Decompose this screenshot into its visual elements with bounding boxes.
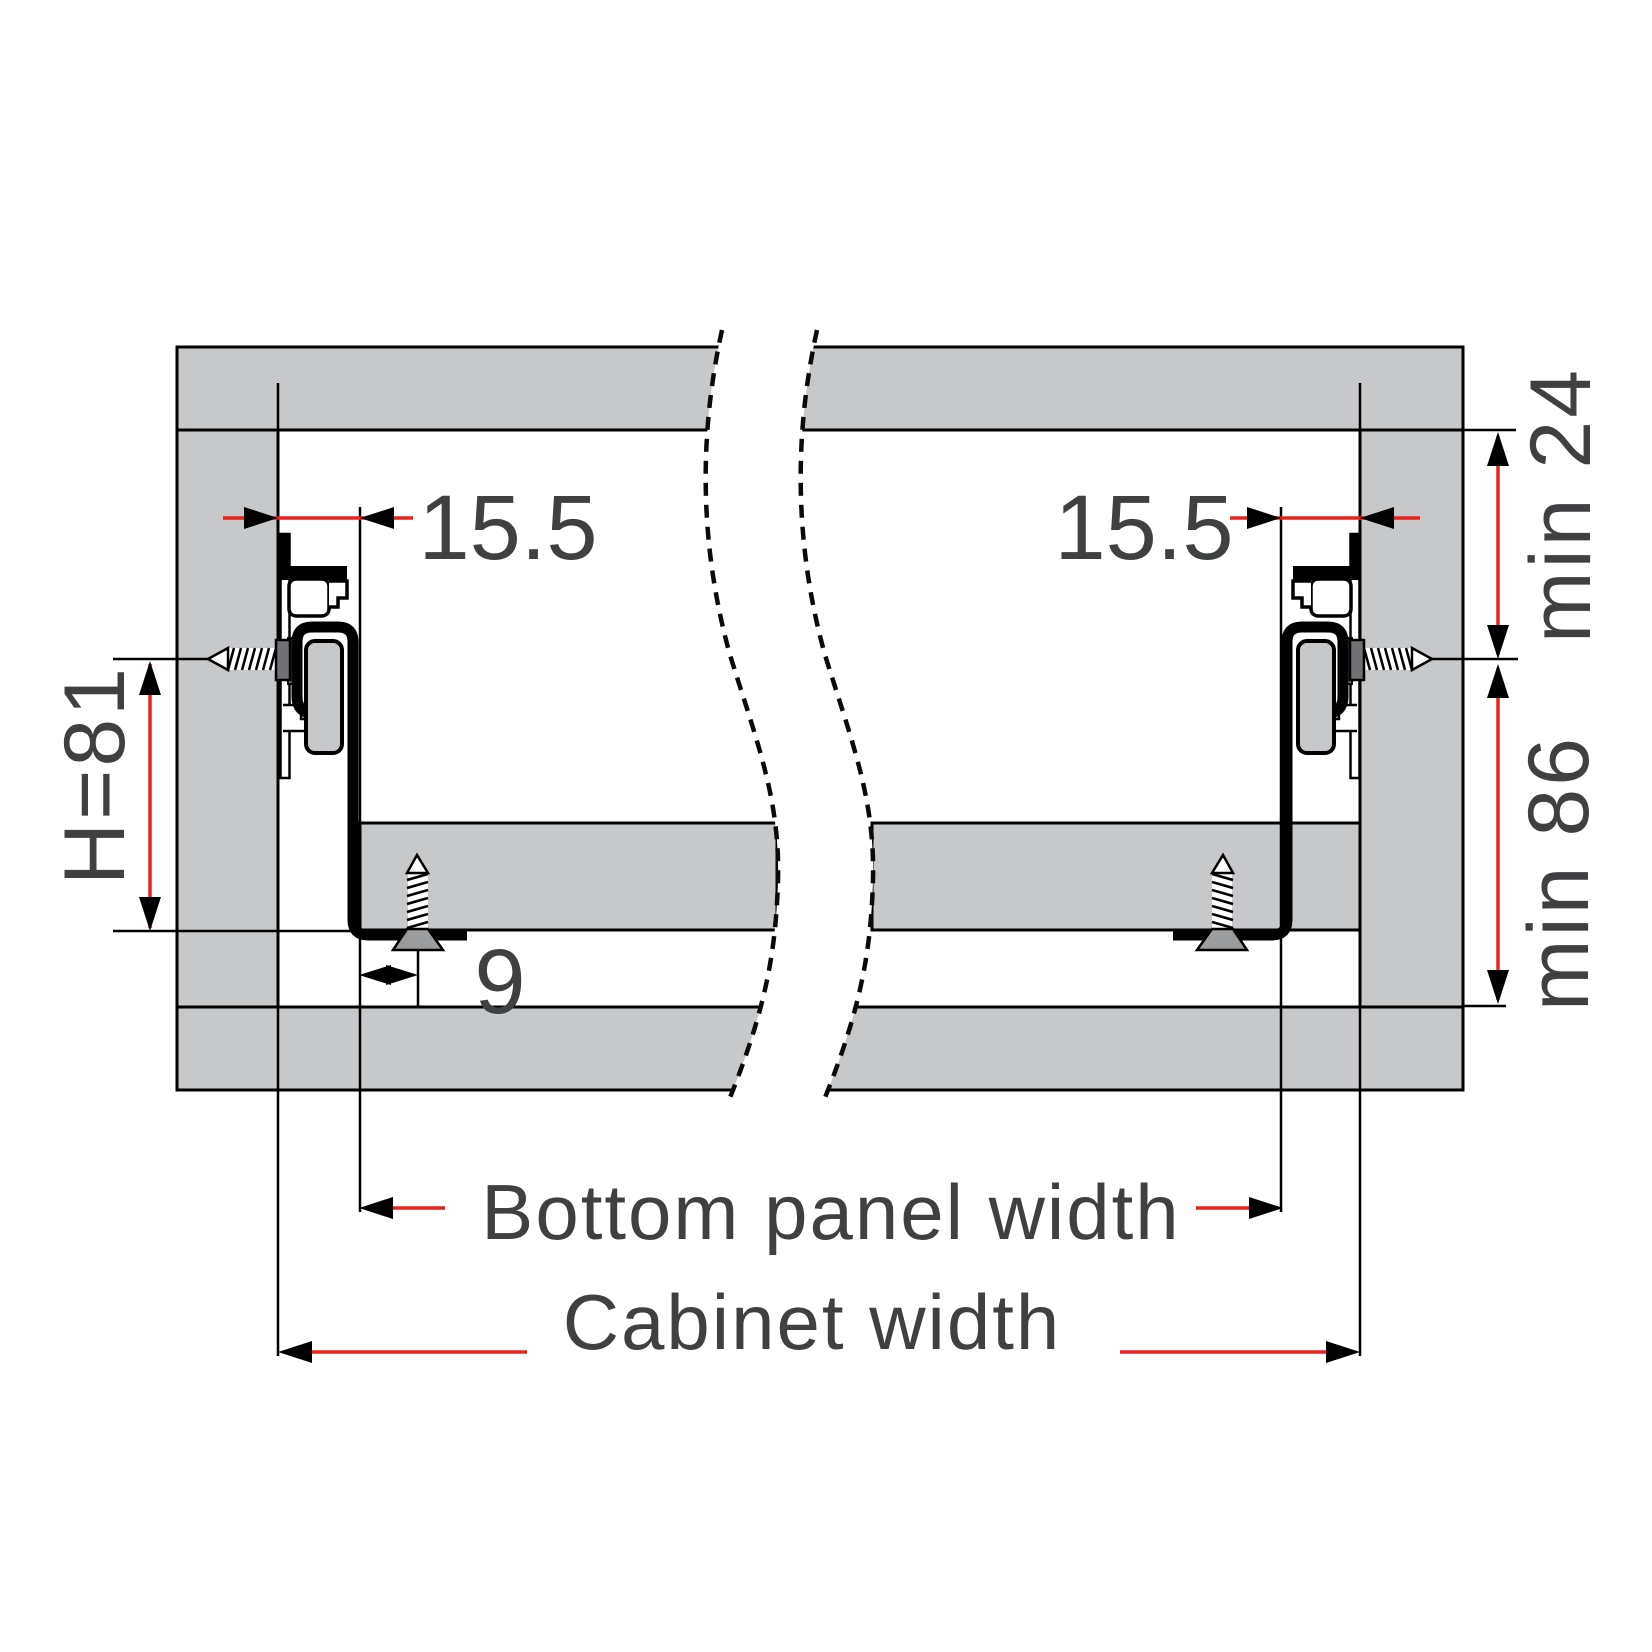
dimension-arrow-icon [359, 1197, 393, 1219]
diagram-canvas [0, 0, 1652, 1652]
dimension-arrow-icon [1326, 1341, 1360, 1363]
cabinet-left-wall [177, 430, 278, 1090]
dim-screw-inset [359, 965, 418, 985]
slide-roller [306, 641, 342, 753]
drawing-page: 15.5 15.5 9 H=81 min 24 min 86 Bottom pa… [0, 0, 1652, 1652]
cabinet-right-wall [1360, 430, 1463, 1090]
dim-top-clearance [1487, 432, 1509, 659]
dimension-arrow-icon [360, 507, 394, 529]
dim-slide-offset-left [223, 507, 413, 529]
label-bottom-panel-width: Bottom panel width [481, 1173, 1180, 1251]
label-cabinet-width: Cabinet width [563, 1283, 1062, 1361]
slide-rail-section [289, 579, 329, 616]
cabinet-top-panel [177, 347, 1463, 430]
dimension-arrow-icon [1487, 970, 1509, 1004]
dimension-arrow-icon [278, 1341, 312, 1363]
dimension-arrow-icon [386, 965, 418, 985]
dimension-arrow-icon [139, 897, 161, 931]
label-mounting-height: H=81 [52, 665, 138, 885]
label-slide-offset-left: 15.5 [418, 482, 597, 574]
label-screw-inset: 9 [474, 936, 525, 1028]
label-top-clearance: min 24 [1518, 367, 1604, 643]
dimension-arrow-icon [1249, 1197, 1283, 1219]
dimension-arrow-icon [1487, 432, 1509, 466]
dim-slide-offset-right [1230, 507, 1420, 529]
break-gap [706, 330, 873, 1105]
label-interior-height: min 86 [1516, 735, 1602, 1011]
slide-hook [329, 581, 347, 607]
dim-interior-height [1487, 664, 1509, 1004]
label-slide-offset-right: 15.5 [1054, 482, 1233, 574]
dimension-arrow-icon [1487, 664, 1509, 698]
dimension-arrow-icon [1487, 625, 1509, 659]
dimension-arrow-icon [1247, 507, 1281, 529]
